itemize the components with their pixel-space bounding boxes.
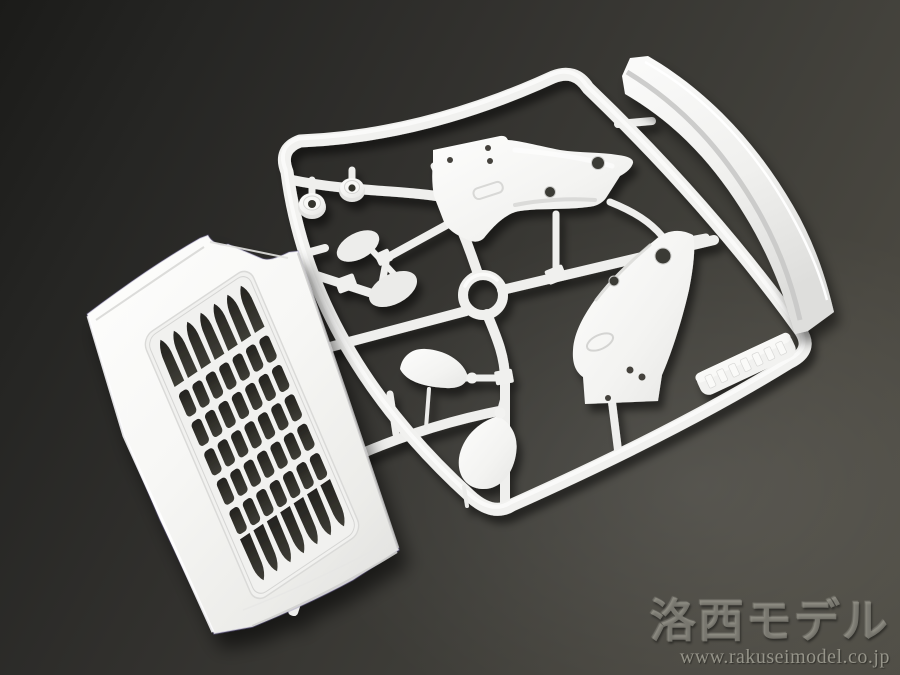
bracket-hole — [485, 145, 491, 151]
ball-joint — [467, 373, 478, 384]
photo-scene: 洛西モデル www.rakuseimodel.co.jp — [0, 0, 900, 675]
bracket-hole — [605, 395, 611, 401]
bracket-hole — [627, 367, 634, 374]
mirror-pin — [426, 389, 429, 428]
round-cap-2 — [339, 178, 365, 202]
sprue-photo-svg — [0, 0, 900, 675]
bracket-hole — [447, 157, 453, 163]
bracket-hole — [655, 248, 671, 264]
bracket-hole — [609, 276, 619, 286]
mirror-face-1 — [332, 224, 385, 269]
bracket-hole — [545, 187, 556, 198]
round-cap-1 — [298, 193, 326, 219]
bracket-right-gate — [610, 202, 662, 236]
bracket2-bottom-gate — [612, 402, 618, 450]
bracket-hole — [592, 157, 605, 170]
mirror-face-riser — [390, 222, 452, 256]
bracket-piece-upper — [432, 136, 633, 242]
bracket-hole — [639, 374, 646, 381]
bracket-hole — [487, 158, 493, 164]
grille-panel — [87, 235, 399, 634]
ball-joint — [495, 408, 506, 419]
